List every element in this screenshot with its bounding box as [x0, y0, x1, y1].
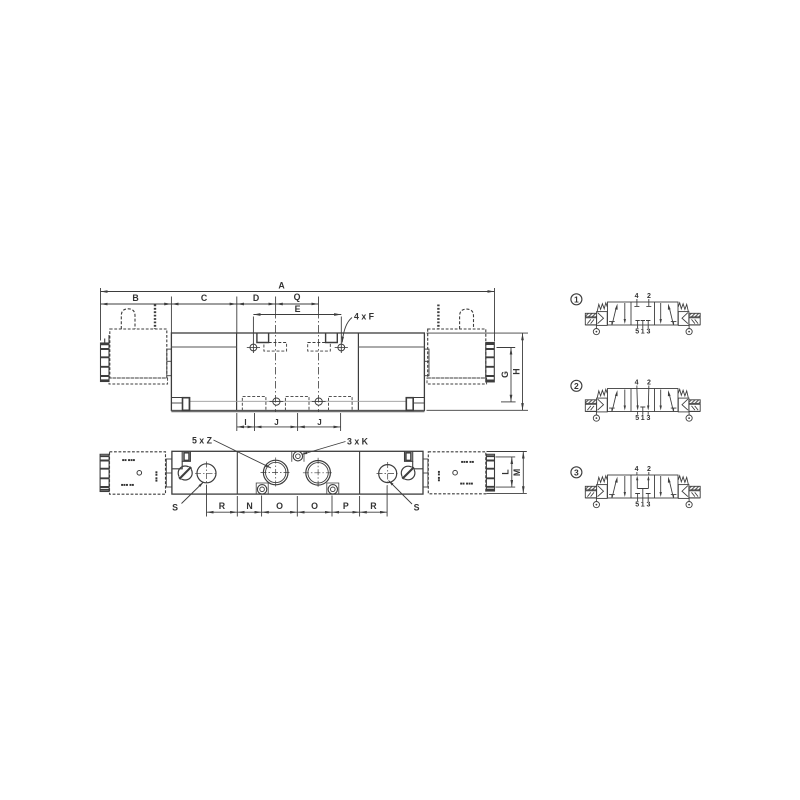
- svg-text:A: A: [278, 281, 285, 291]
- svg-text:1: 1: [574, 295, 579, 305]
- svg-text:■■■ ■■: ■■■ ■■: [459, 481, 473, 486]
- svg-text:3 x K: 3 x K: [347, 437, 369, 447]
- svg-text:I: I: [244, 418, 246, 427]
- svg-text:M: M: [512, 469, 522, 476]
- svg-text:5 x Z: 5 x Z: [192, 436, 213, 446]
- svg-text:H: H: [512, 368, 522, 374]
- svg-text:B: B: [132, 293, 138, 303]
- svg-text:S: S: [414, 503, 420, 513]
- svg-text:3: 3: [574, 468, 579, 478]
- svg-text:J: J: [317, 418, 321, 427]
- svg-text:O: O: [311, 501, 318, 511]
- svg-text:■■■ ■■: ■■■ ■■: [121, 482, 135, 487]
- svg-text:J: J: [274, 418, 278, 427]
- svg-text:■■ ■■: ■■ ■■: [436, 470, 441, 481]
- svg-text:■■■ ■■: ■■■ ■■: [121, 458, 135, 463]
- svg-text:■■■ ■■: ■■■ ■■: [461, 459, 475, 464]
- svg-text:■■ ■■: ■■ ■■: [153, 470, 158, 481]
- svg-text:L: L: [500, 469, 510, 475]
- svg-text:N: N: [246, 501, 252, 511]
- svg-text:R: R: [219, 501, 226, 511]
- svg-text:Q: Q: [294, 292, 301, 302]
- svg-text:S: S: [172, 503, 178, 513]
- svg-text:D: D: [253, 293, 259, 303]
- svg-text:E: E: [295, 304, 301, 314]
- svg-text:C: C: [201, 293, 208, 303]
- svg-text:O: O: [276, 501, 283, 511]
- svg-text:G: G: [500, 371, 510, 378]
- svg-text:P: P: [343, 501, 349, 511]
- svg-text:2: 2: [574, 381, 579, 391]
- svg-text:R: R: [370, 501, 377, 511]
- svg-text:4 x F: 4 x F: [354, 312, 375, 322]
